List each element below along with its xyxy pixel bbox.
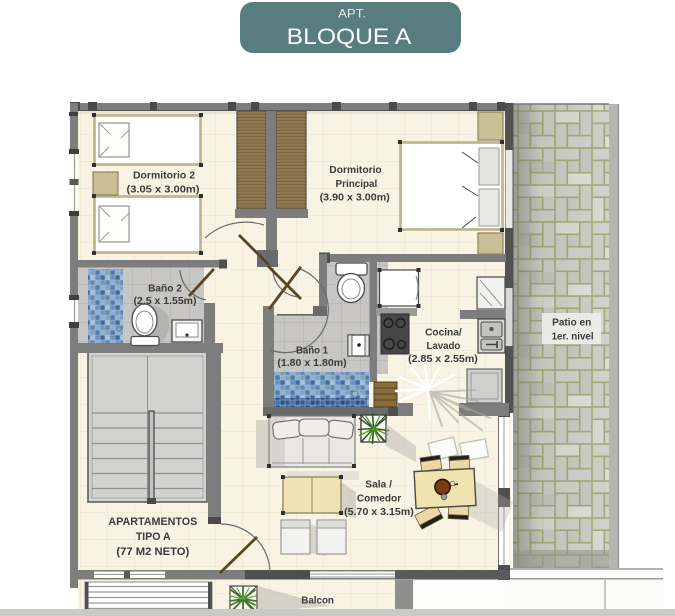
svg-text:Dormitorio: Dormitorio <box>329 165 381 176</box>
svg-text:(3.90 x 3.00m): (3.90 x 3.00m) <box>320 192 390 203</box>
svg-text:BLOQUE A: BLOQUE A <box>287 24 412 49</box>
svg-text:Dormitorio 2: Dormitorio 2 <box>133 171 195 182</box>
svg-text:APT.: APT. <box>338 7 366 21</box>
svg-text:(2.5 x 1.55m): (2.5 x 1.55m) <box>134 296 197 307</box>
svg-text:Sala /: Sala / <box>365 480 392 491</box>
svg-text:APARTAMENTOS: APARTAMENTOS <box>108 516 197 528</box>
svg-text:Baño 1: Baño 1 <box>296 345 328 356</box>
svg-text:Baño 2: Baño 2 <box>148 284 182 295</box>
svg-text:(2.85 x 2.55m): (2.85 x 2.55m) <box>408 354 478 365</box>
svg-text:Balcon: Balcon <box>301 595 334 606</box>
svg-text:(77 M2 NETO): (77 M2 NETO) <box>116 546 189 558</box>
svg-text:Cocina/: Cocina/ <box>425 328 462 339</box>
svg-text:(1.80 x 1.80m): (1.80 x 1.80m) <box>277 358 346 369</box>
svg-text:Principal: Principal <box>336 179 378 190</box>
svg-text:Lavado: Lavado <box>427 341 461 352</box>
svg-text:Comedor: Comedor <box>357 494 401 505</box>
svg-text:(3.05 x 3.00m): (3.05 x 3.00m) <box>127 185 200 196</box>
svg-text:(5.70 x 3.15m): (5.70 x 3.15m) <box>344 507 414 518</box>
svg-text:Patio en: Patio en <box>552 318 591 329</box>
svg-text:TIPO A: TIPO A <box>136 531 171 543</box>
svg-text:1er. nivel: 1er. nivel <box>552 331 594 342</box>
